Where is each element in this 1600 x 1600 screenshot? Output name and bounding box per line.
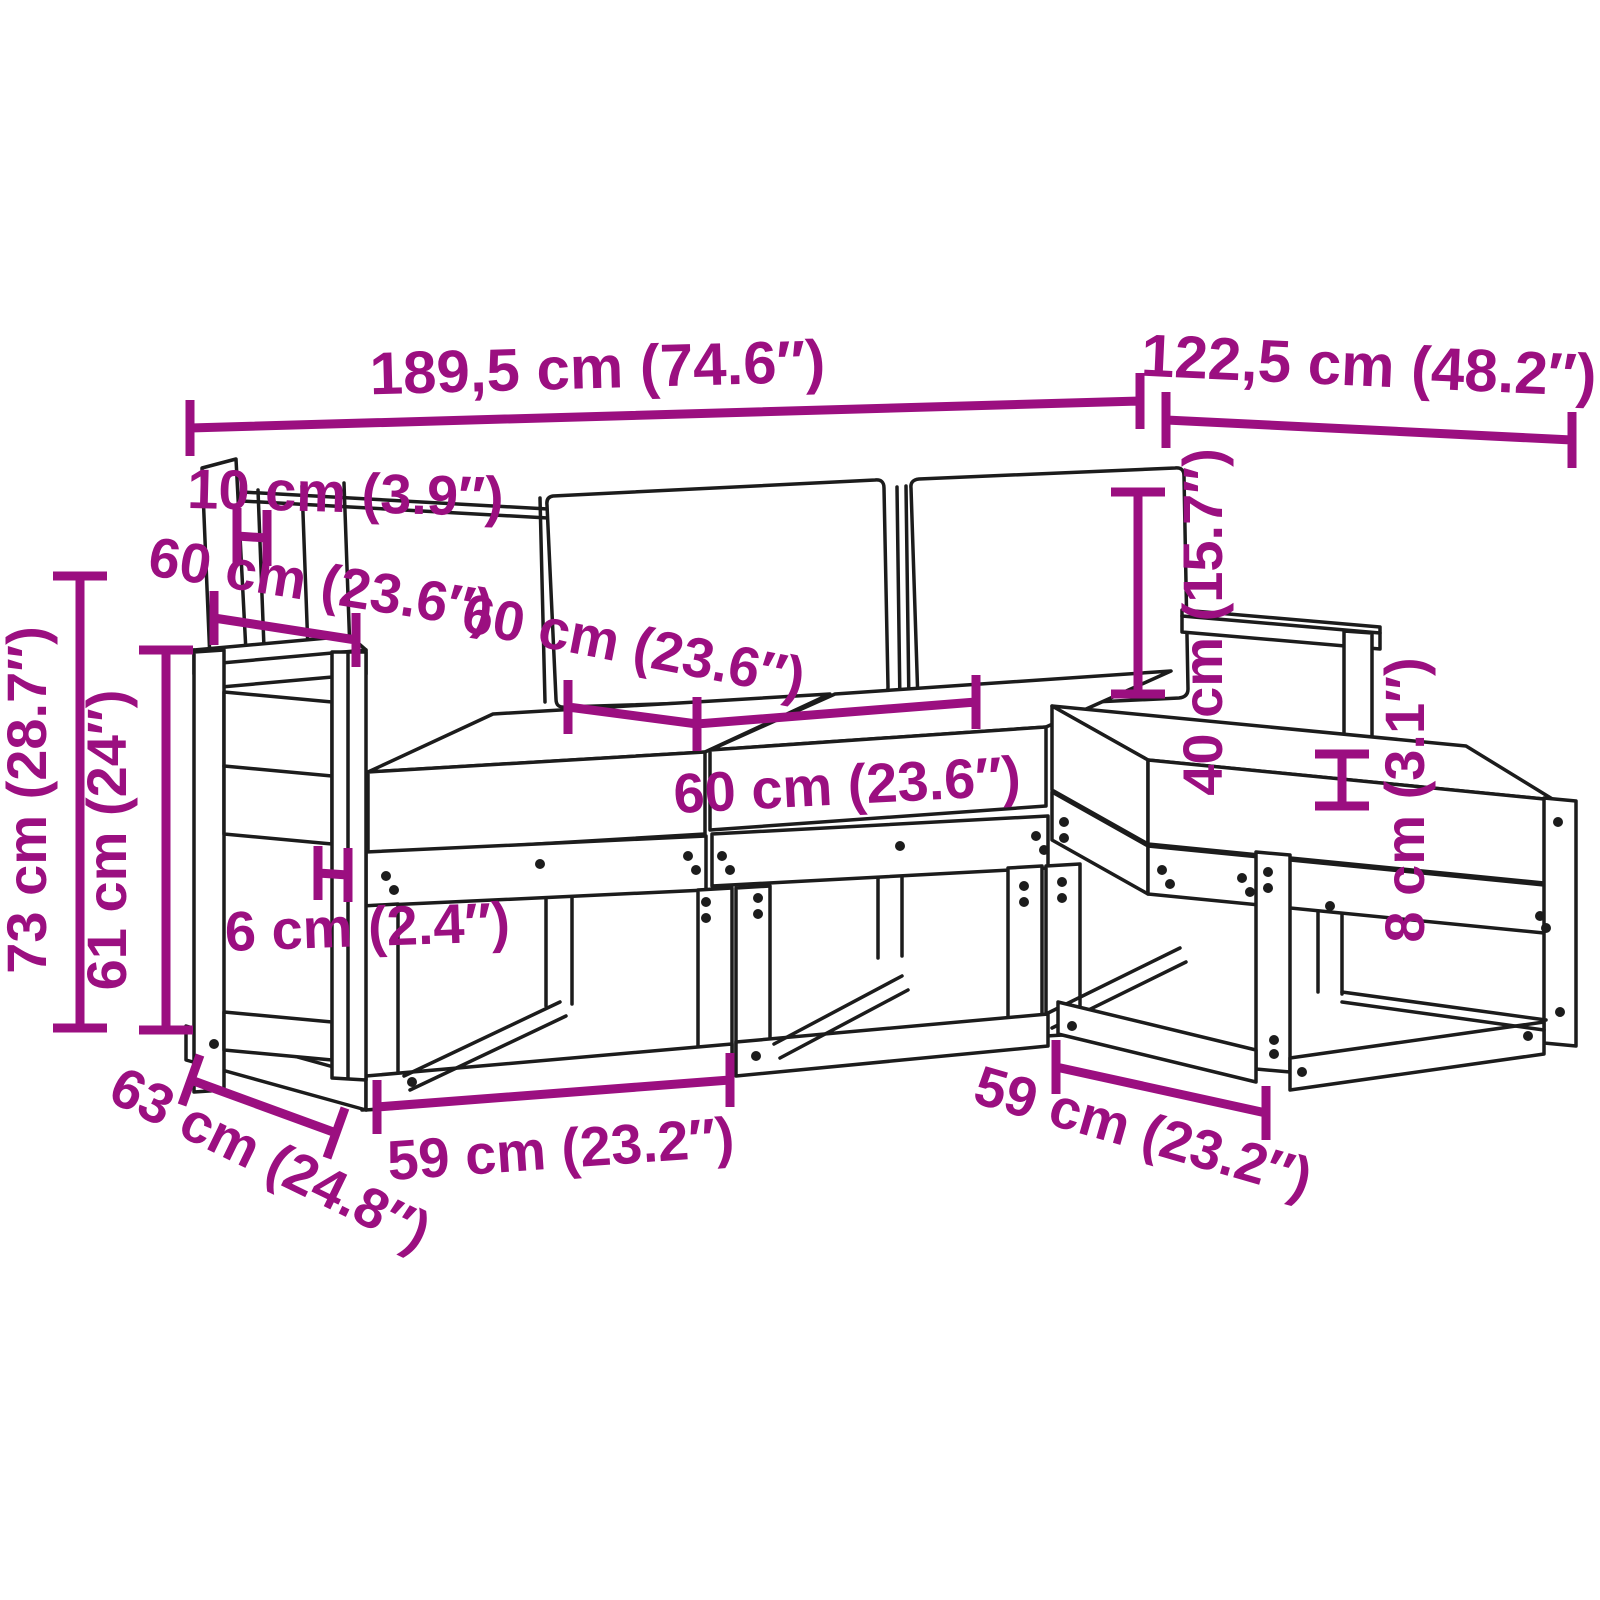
left-armrest-back-post: [194, 650, 224, 1092]
furniture-dimension-diagram: 189,5 cm (74.6″) 122,5 cm (48.2″) 10 cm …: [0, 0, 1600, 1600]
dim-total-height-label: 73 cm (28.7″): [0, 626, 58, 973]
dim-overall-width-label: 189,5 cm (74.6″): [369, 328, 826, 408]
dim-seat-frame-width-left-label: 59 cm (23.2″): [385, 1105, 736, 1192]
dim-backrest-height-label: 40 cm (15.7″): [1171, 448, 1234, 795]
dim-armrest-depth-label: 60 cm (23.6″): [145, 524, 498, 641]
dim-overall-depth-label: 122,5 cm (48.2″): [1140, 322, 1598, 410]
dim-overall-depth: 122,5 cm (48.2″): [1140, 322, 1598, 468]
left-armrest-lower-rail: [224, 1012, 332, 1060]
dim-back-offset-label: 10 cm (3.9″): [187, 457, 505, 528]
diagram-canvas: 189,5 cm (74.6″) 122,5 cm (48.2″) 10 cm …: [0, 0, 1600, 1600]
dim-armrest-height: 61 cm (24″): [75, 650, 193, 1030]
dim-armrest-height-label: 61 cm (24″): [75, 690, 138, 991]
dim-frame-board-width-label: 6 cm (2.4″): [224, 890, 511, 963]
dim-cushion-thickness-label: 8 cm (3.1″): [1373, 657, 1436, 942]
left-armrest: [194, 636, 366, 1092]
dim-overall-width: 189,5 cm (74.6″): [190, 328, 1140, 456]
